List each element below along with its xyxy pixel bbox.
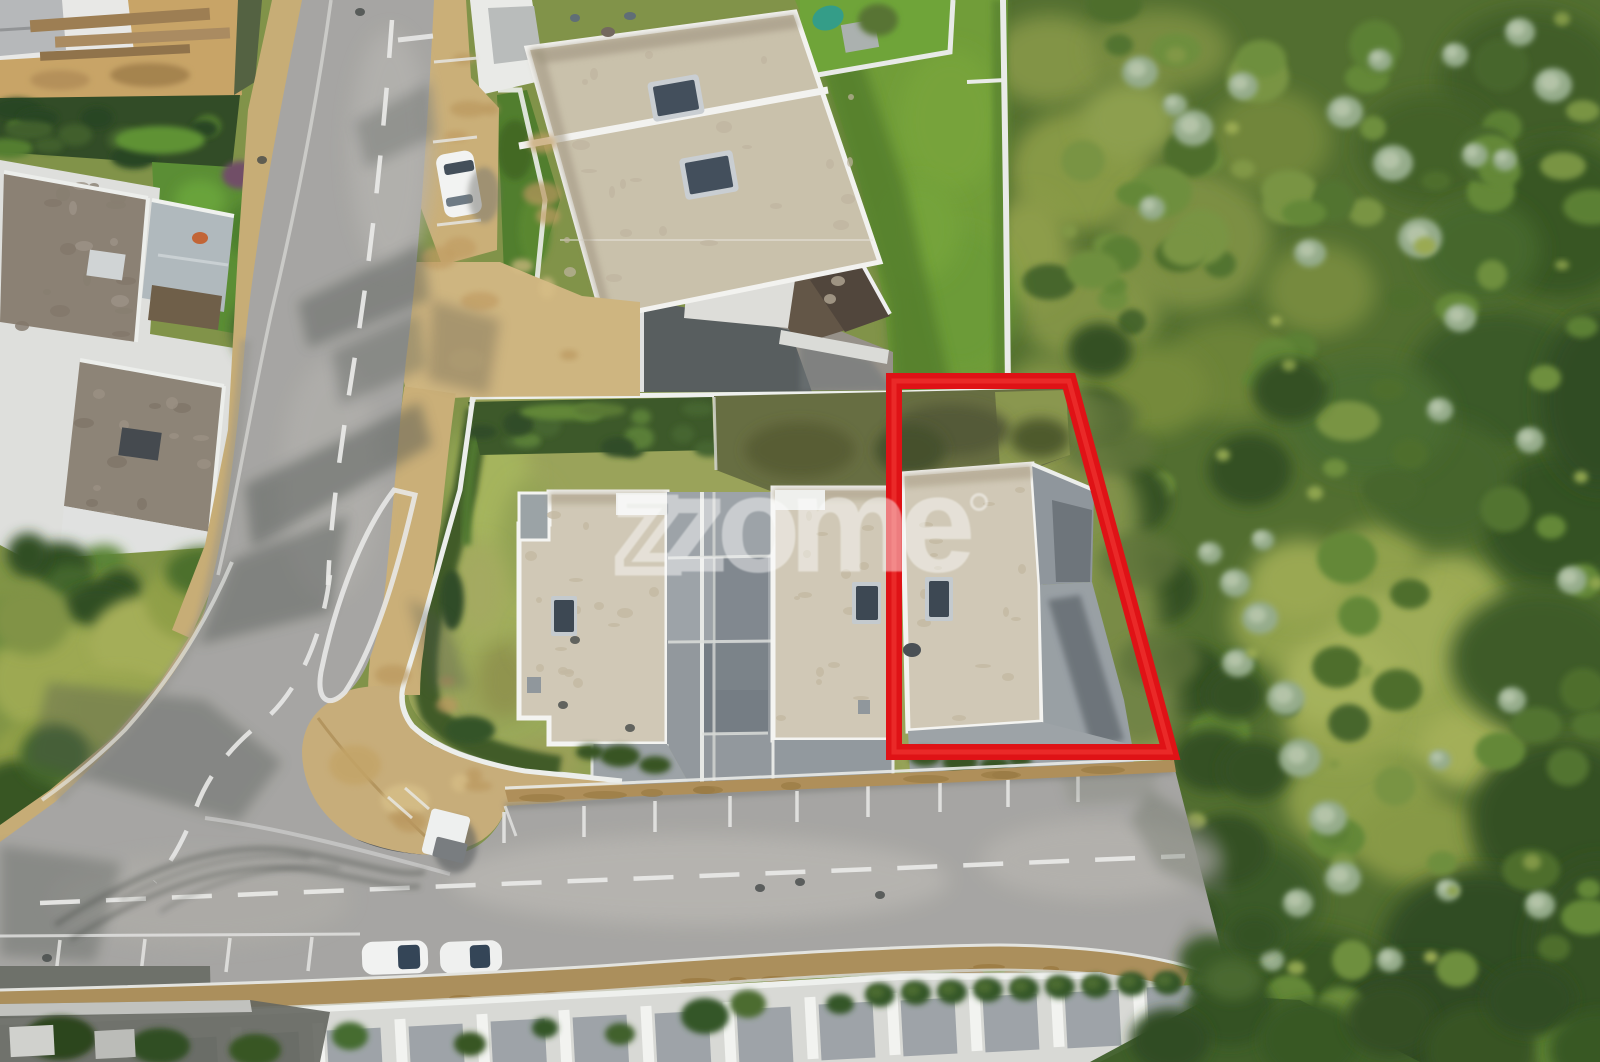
svg-text:zome: zome [660, 448, 975, 600]
